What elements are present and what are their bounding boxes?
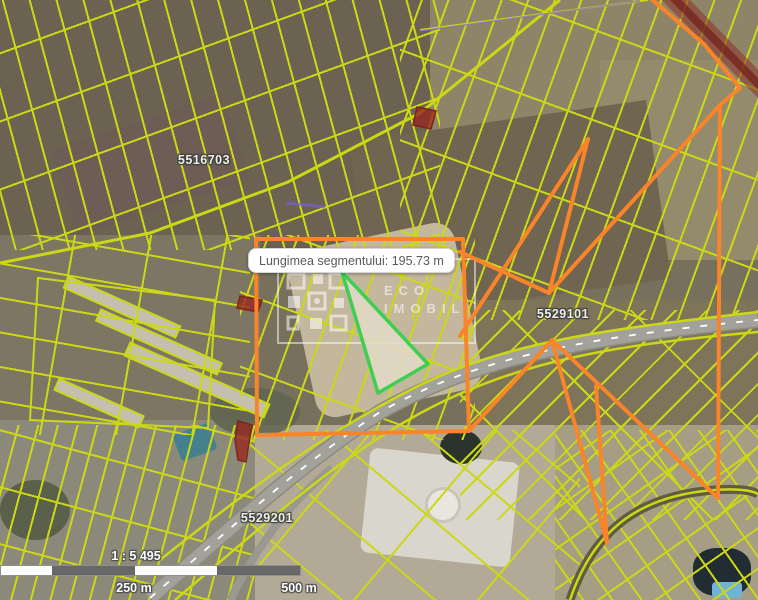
parcel-number-label: 5529201	[241, 511, 293, 525]
scale-bar: 1 : 5 495 250 m 500 m	[0, 545, 340, 600]
scale-ratio-text: 1 : 5 495	[111, 549, 160, 563]
measurement-tooltip: Lungimea segmentului: 195.73 m	[248, 248, 455, 273]
parcel-number-label: 5516703	[178, 153, 230, 167]
red-road-band	[668, 0, 758, 92]
measurement-tooltip-text: Lungimea segmentului: 195.73 m	[259, 254, 444, 268]
scale-mid-label: 250 m	[116, 581, 151, 595]
scale-segment	[52, 566, 135, 575]
scale-end-label: 500 m	[281, 581, 316, 595]
survey-lines-purple	[286, 1, 640, 207]
highlighted-parcel[interactable]	[342, 272, 428, 393]
map-overlay	[0, 0, 758, 600]
map-canvas[interactable]: ECO IMOBIL 5516703 5529101 5529201 Lungi…	[0, 0, 758, 600]
red-parcels	[235, 107, 436, 462]
scale-segment	[135, 566, 218, 575]
scale-bar-segments	[0, 565, 301, 576]
scale-segment	[1, 566, 52, 575]
scale-segment	[217, 566, 300, 575]
parcel-number-label: 5529101	[537, 307, 589, 321]
